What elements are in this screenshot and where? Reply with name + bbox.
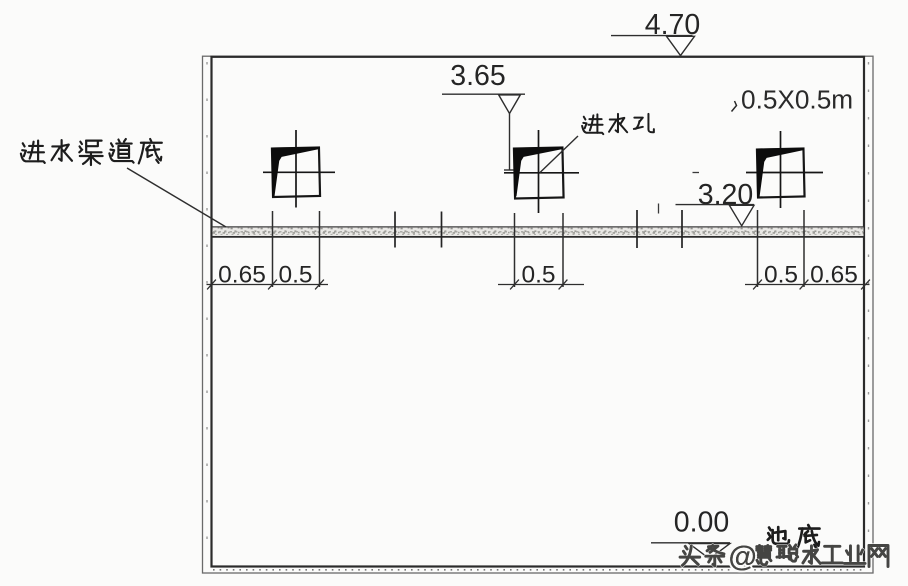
svg-text:0.5X0.5m: 0.5X0.5m [741,85,853,115]
svg-text:0.5: 0.5 [764,262,798,289]
svg-text:0.5: 0.5 [521,262,555,289]
svg-text:0.65: 0.65 [218,262,266,289]
svg-text:0.65: 0.65 [810,262,858,289]
svg-text:3.65: 3.65 [450,60,505,92]
svg-text:0.5: 0.5 [278,262,312,289]
svg-text:0.00: 0.00 [674,507,729,539]
svg-text:@: @ [729,541,757,573]
